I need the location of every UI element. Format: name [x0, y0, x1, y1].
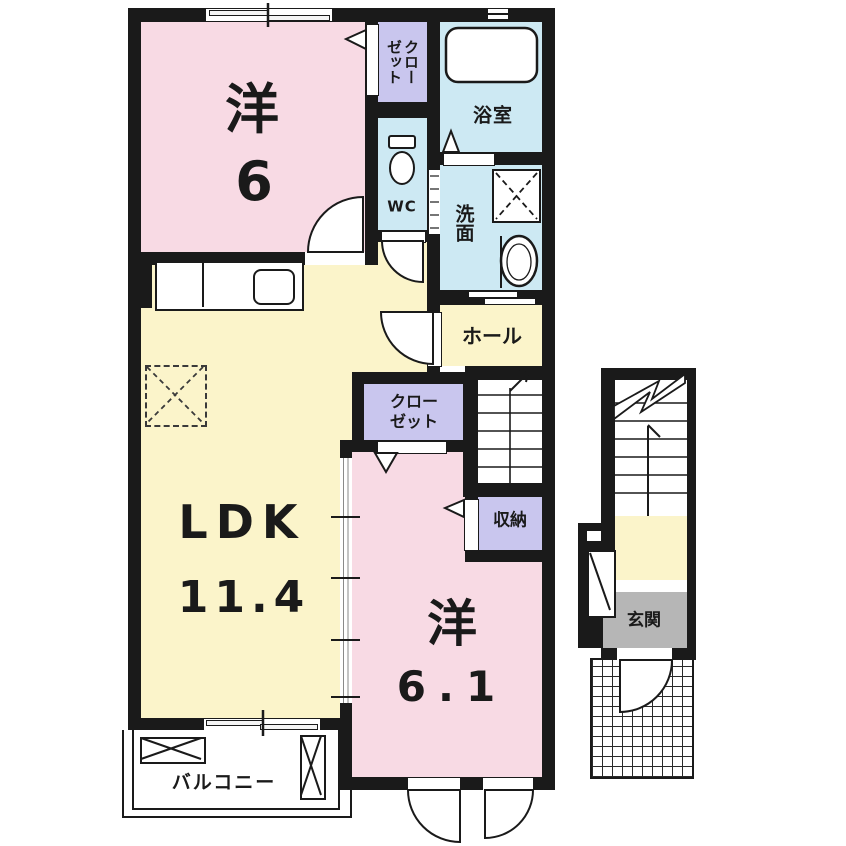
- bedroom2-sliding-door-band: [340, 458, 352, 703]
- wall: [128, 8, 141, 730]
- kitchen-sink: [253, 269, 295, 305]
- wc-door-leaf: [381, 231, 426, 243]
- hall-label: ホール: [462, 326, 522, 346]
- bathroom-window: [488, 9, 508, 13]
- bedroom2-label: 洋: [427, 599, 477, 649]
- washroom-sliding-door: [484, 298, 536, 305]
- entrance-door-gap: [617, 648, 672, 660]
- wall: [352, 372, 478, 384]
- wall: [465, 483, 555, 497]
- floor-plan: 洋 6 クロー ゼット 浴室 WC 洗面 ホール クロー ゼット LDK 11.…: [0, 0, 846, 846]
- bathroom-label: 浴室: [473, 107, 513, 126]
- ldk-window-pane: [206, 720, 264, 726]
- wall: [465, 550, 555, 562]
- annex-landing-area: [615, 516, 687, 580]
- annex-notch: [587, 531, 601, 541]
- bedroom2-size: 6.1: [397, 666, 507, 708]
- closet-mid-door: [377, 441, 447, 454]
- entrance-label: 玄関: [627, 613, 661, 630]
- wc-wall-shelf-band: [429, 170, 440, 234]
- bathroom-door-leaf: [443, 153, 495, 166]
- bedroom1-door-gap: [305, 252, 365, 265]
- entrance-porch-hatch: [590, 658, 694, 779]
- bedroom1-size: 6: [235, 155, 273, 209]
- entrance-door-leaf: [587, 550, 616, 618]
- closet-mid-label-line2: ゼット: [390, 412, 438, 432]
- wall: [463, 372, 478, 497]
- hall-door-leaf: [427, 312, 442, 367]
- ldk-label: LDK: [178, 499, 305, 545]
- bedroom2-door-gap: [483, 778, 533, 790]
- stairs-area: [478, 380, 542, 483]
- bedroom2-door-swing-left: [408, 790, 460, 842]
- wall: [141, 261, 152, 308]
- annex-strip: [615, 580, 687, 592]
- bathroom-area: [440, 22, 542, 152]
- ldk-size: 11.4: [178, 576, 311, 620]
- balcony-hatch-box-vertical: [300, 735, 326, 800]
- closet-mid-label-line1: クロー: [390, 392, 438, 412]
- washroom-sliding-door: [468, 291, 518, 298]
- storage-door: [464, 499, 479, 551]
- kitchen-counter-divider: [202, 262, 204, 307]
- bathroom-window: [488, 15, 508, 19]
- ldk-dashed-box: [145, 365, 207, 427]
- closet-top-door: [366, 24, 379, 96]
- closet-mid-label: クロー ゼット: [390, 392, 438, 432]
- closet-top-label: クロー ゼット: [386, 40, 418, 85]
- closet-top-label-col1: クロー: [403, 40, 418, 85]
- balcony-label: バルコニー: [172, 774, 277, 793]
- bedroom2-door-swing-right: [485, 790, 533, 838]
- ldk-window-pane: [260, 724, 318, 730]
- bedroom1-window-pane: [268, 15, 330, 21]
- storage-label: 収納: [493, 513, 527, 530]
- wall: [465, 366, 555, 380]
- corridor-area: [378, 242, 427, 265]
- wall: [365, 102, 427, 118]
- annex-stairs-area: [615, 380, 687, 516]
- bedroom2-door-gap: [408, 778, 460, 790]
- bedroom1-label: 洋: [225, 83, 279, 137]
- washroom-label: 洗面: [454, 204, 473, 242]
- bedroom1-window-pane: [209, 10, 269, 16]
- balcony-hatch-box-horizontal: [140, 737, 206, 764]
- closet-top-label-col2: ゼット: [386, 40, 401, 85]
- toilet-label: WC: [387, 200, 417, 215]
- wall: [542, 8, 555, 790]
